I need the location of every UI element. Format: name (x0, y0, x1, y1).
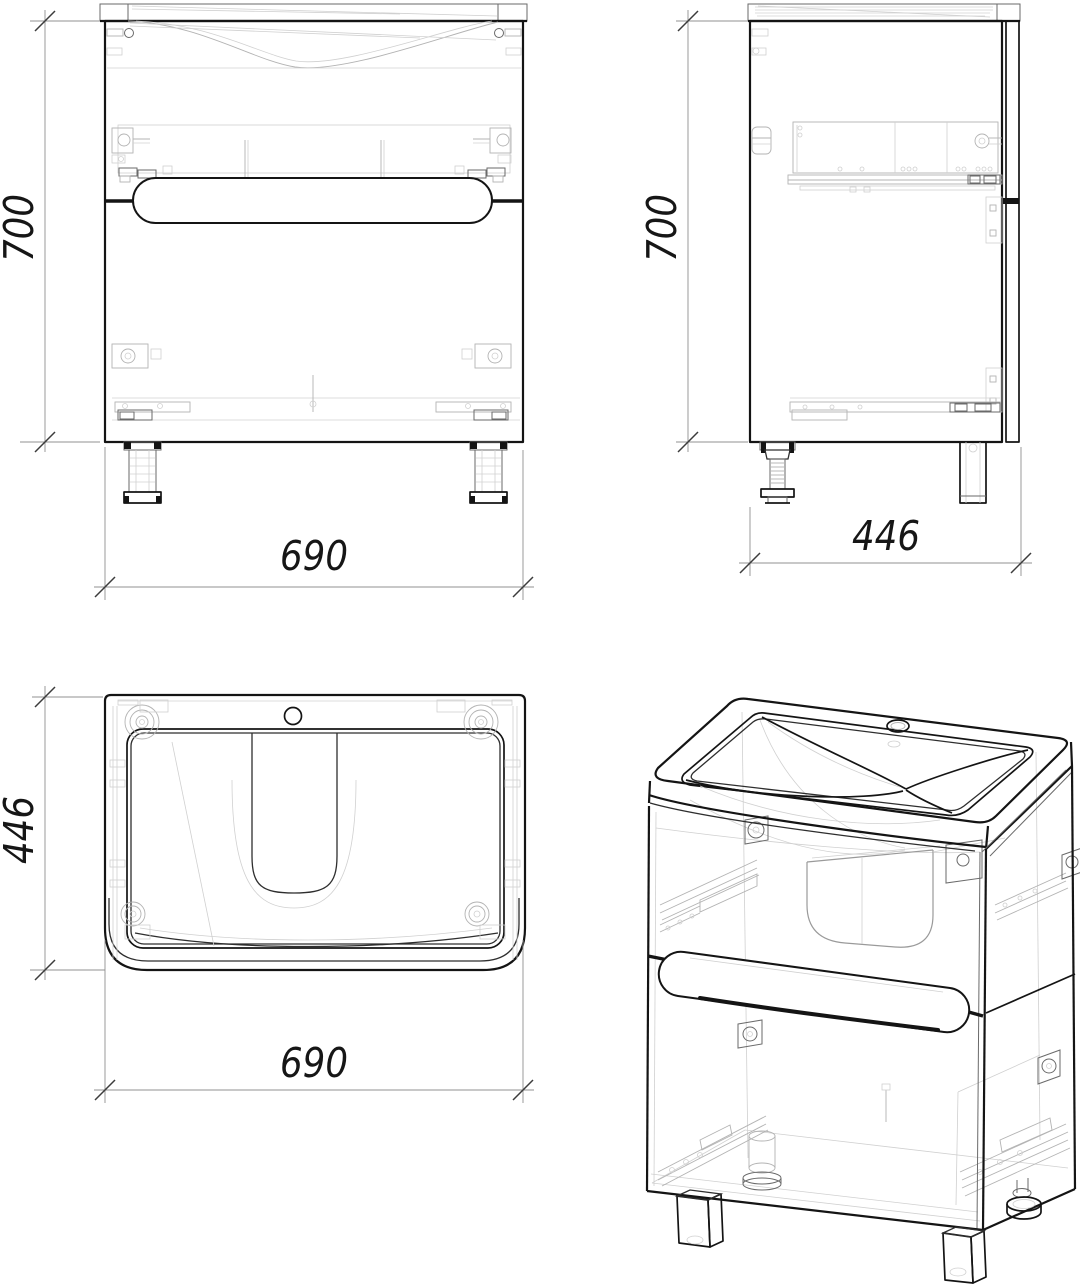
side-rear-adjustable-foot (760, 442, 795, 503)
drawing-sheet: 700 690 (0, 0, 1080, 1284)
faucet-hole (285, 708, 302, 725)
side-depth-dimension: 446 (739, 447, 1032, 576)
sink-basin-rim (127, 729, 504, 948)
front-height-dimension: 700 (0, 10, 100, 452)
side-height-dimension: 700 (638, 10, 748, 452)
top-view: 446 690 (0, 686, 534, 1103)
technical-drawing-canvas: 700 690 (0, 0, 1080, 1284)
iso-front-right-leg (943, 1227, 986, 1283)
dim-front-width: 690 (280, 532, 348, 580)
dim-side-height: 700 (638, 194, 686, 262)
dim-top-width: 690 (280, 1039, 348, 1087)
front-view: 700 690 (0, 4, 534, 600)
iso-drawer-handle (659, 952, 969, 1032)
siphon-shroud (807, 838, 1005, 947)
dim-front-height: 700 (0, 194, 43, 262)
dim-side-depth: 446 (852, 512, 920, 560)
side-view: 700 446 (638, 4, 1032, 576)
dim-top-depth: 446 (0, 796, 43, 864)
drawer-handle (133, 178, 492, 223)
side-front-panel (1006, 21, 1019, 442)
front-countertop (100, 4, 527, 21)
top-countertop-outline (105, 695, 525, 970)
front-right-leg (470, 442, 507, 503)
isometric-view (647, 699, 1080, 1283)
drain-channel (232, 733, 356, 908)
front-cabinet-body (105, 21, 523, 442)
front-left-leg (124, 442, 161, 503)
side-front-leg (960, 442, 986, 503)
top-depth-dimension: 446 (0, 686, 105, 980)
iso-side-gap-line (986, 974, 1075, 1013)
side-countertop (748, 4, 1020, 21)
front-width-dimension: 690 (94, 447, 534, 600)
top-corner-hardware (110, 700, 520, 960)
top-width-dimension: 690 (94, 940, 534, 1103)
side-cabinet-body (750, 21, 1019, 442)
